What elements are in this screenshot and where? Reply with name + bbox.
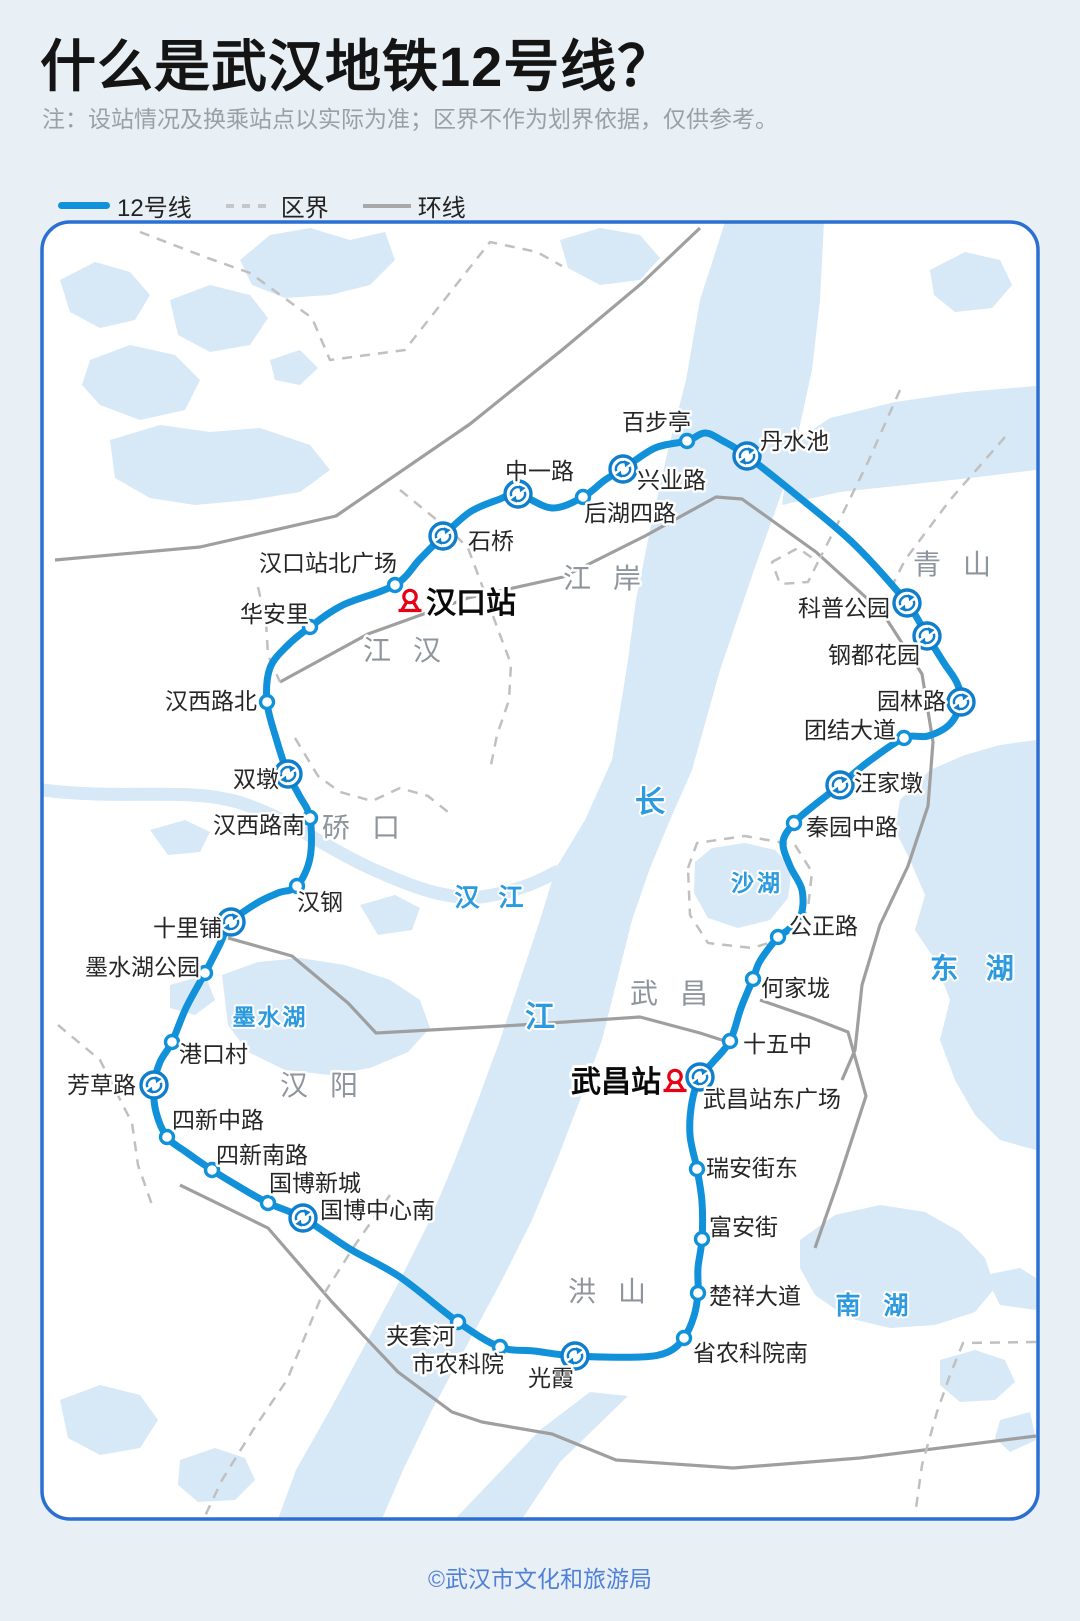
station-dot xyxy=(678,1332,691,1345)
transfer-station-icon xyxy=(948,689,974,715)
water-label: 江 xyxy=(525,1001,555,1034)
district-label: 硚口 xyxy=(322,812,422,843)
station-dot xyxy=(389,579,402,592)
station-dot xyxy=(692,1287,705,1300)
water-label: 墨水湖 xyxy=(233,1004,308,1030)
station-label: 汪家墩 xyxy=(854,770,923,796)
station-label: 十里铺 xyxy=(153,915,222,941)
transfer-station-icon xyxy=(290,1205,316,1231)
station-label: 园林路 xyxy=(877,688,946,714)
station-label: 石桥 xyxy=(468,528,514,554)
transfer-station-icon xyxy=(610,456,636,482)
station-label: 夹套河 xyxy=(386,1323,455,1349)
station-label: 墨水湖公园 xyxy=(85,954,200,980)
line12-map: 汉口站北广场石桥中一路后湖四路兴业路百步亭丹水池科普公园钢都花园园林路团结大道汪… xyxy=(0,0,1080,1621)
transfer-station-icon xyxy=(894,590,920,616)
station-label: 双墩 xyxy=(233,766,279,792)
railway-station-label: 武昌站 xyxy=(571,1066,661,1099)
water-label: 沙湖 xyxy=(731,870,783,896)
station-label: 武昌站东广场 xyxy=(703,1086,841,1112)
district-label: 武昌 xyxy=(630,978,730,1009)
station-label: 汉西路南 xyxy=(213,812,305,838)
station-label: 港口村 xyxy=(179,1041,248,1067)
water-label: 东 湖 xyxy=(930,952,1024,984)
station-label: 富安街 xyxy=(709,1214,778,1240)
station-dot xyxy=(304,812,317,825)
district-label: 青山 xyxy=(913,549,1013,580)
district-label: 江汉 xyxy=(363,635,463,666)
station-label: 汉口站北广场 xyxy=(259,550,397,576)
infographic-page: 什么是武汉地铁12号线？ 注：设站情况及换乘站点以实际为准；区界不作为划界依据，… xyxy=(0,0,1080,1621)
railway-station-label: 汉口站 xyxy=(426,587,516,620)
station-dot xyxy=(747,973,760,986)
transfer-station-icon xyxy=(734,443,760,469)
water-label: 汉 江 xyxy=(455,884,530,912)
station-label: 瑞安街东 xyxy=(706,1155,798,1181)
transfer-station-icon xyxy=(505,481,531,507)
station-dot xyxy=(261,696,274,709)
station-label: 后湖四路 xyxy=(584,500,676,526)
station-dot xyxy=(199,967,212,980)
station-label: 汉钢 xyxy=(297,889,343,915)
transfer-station-icon xyxy=(827,772,853,798)
station-label: 中一路 xyxy=(505,458,574,484)
transfer-station-icon xyxy=(141,1072,167,1098)
station-label: 兴业路 xyxy=(637,467,706,493)
station-label: 芳草路 xyxy=(67,1072,136,1098)
station-label: 国博中心南 xyxy=(320,1197,435,1223)
station-dot xyxy=(898,732,911,745)
station-label: 四新中路 xyxy=(172,1107,264,1133)
water-label: 南 湖 xyxy=(836,1292,917,1320)
district-label: 汉阳 xyxy=(280,1070,380,1101)
footer-credit: ©武汉市文化和旅游局 xyxy=(0,1560,1080,1594)
station-dot xyxy=(788,817,801,830)
station-dot xyxy=(696,1233,709,1246)
station-label: 秦园中路 xyxy=(806,814,898,840)
station-label: 团结大道 xyxy=(804,717,896,743)
station-label: 楚祥大道 xyxy=(709,1283,801,1309)
station-label: 四新南路 xyxy=(216,1142,308,1168)
station-dot xyxy=(724,1035,737,1048)
station-label: 丹水池 xyxy=(760,428,829,454)
station-label: 华安里 xyxy=(240,601,309,627)
station-label: 钢都花园 xyxy=(828,642,920,668)
water-label: 长 xyxy=(635,786,665,819)
station-label: 科普公园 xyxy=(798,595,890,621)
station-label: 光霞 xyxy=(528,1365,574,1391)
station-label: 何家垅 xyxy=(761,975,830,1001)
station-dot xyxy=(691,1163,704,1176)
station-dot xyxy=(262,1197,275,1210)
station-label: 国博新城 xyxy=(269,1170,361,1196)
station-label: 省农科院南 xyxy=(693,1340,808,1366)
district-label: 洪山 xyxy=(568,1276,668,1307)
station-dot xyxy=(681,435,694,448)
transfer-station-icon xyxy=(430,523,456,549)
station-dot xyxy=(166,1036,179,1049)
station-label: 十五中 xyxy=(743,1031,812,1057)
station-dot xyxy=(772,931,785,944)
station-label: 市农科院 xyxy=(412,1351,504,1377)
station-label: 百步亭 xyxy=(622,409,691,435)
station-label: 公正路 xyxy=(789,913,858,939)
district-label: 江岸 xyxy=(563,563,663,594)
station-label: 汉西路北 xyxy=(165,688,257,714)
